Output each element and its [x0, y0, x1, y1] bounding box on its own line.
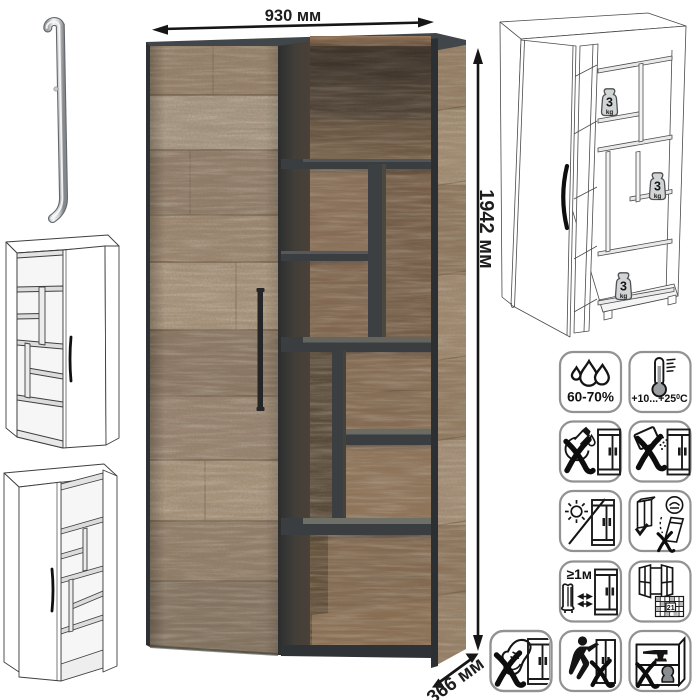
svg-text:kg: kg [654, 193, 662, 200]
svg-text:3: 3 [606, 96, 613, 110]
svg-text:60-70%: 60-70% [567, 390, 614, 405]
svg-text:+10...+250С: +10...+250С [631, 393, 688, 405]
svg-text:21: 21 [667, 605, 675, 612]
svg-text:3: 3 [654, 180, 661, 194]
svg-text:930 мм: 930 мм [265, 7, 322, 25]
svg-text:kg: kg [606, 109, 614, 116]
svg-text:≥1м: ≥1м [567, 567, 592, 582]
svg-text:kg: kg [620, 293, 628, 300]
svg-text:3: 3 [620, 280, 627, 294]
svg-text:1942 мм: 1942 мм [475, 189, 497, 269]
